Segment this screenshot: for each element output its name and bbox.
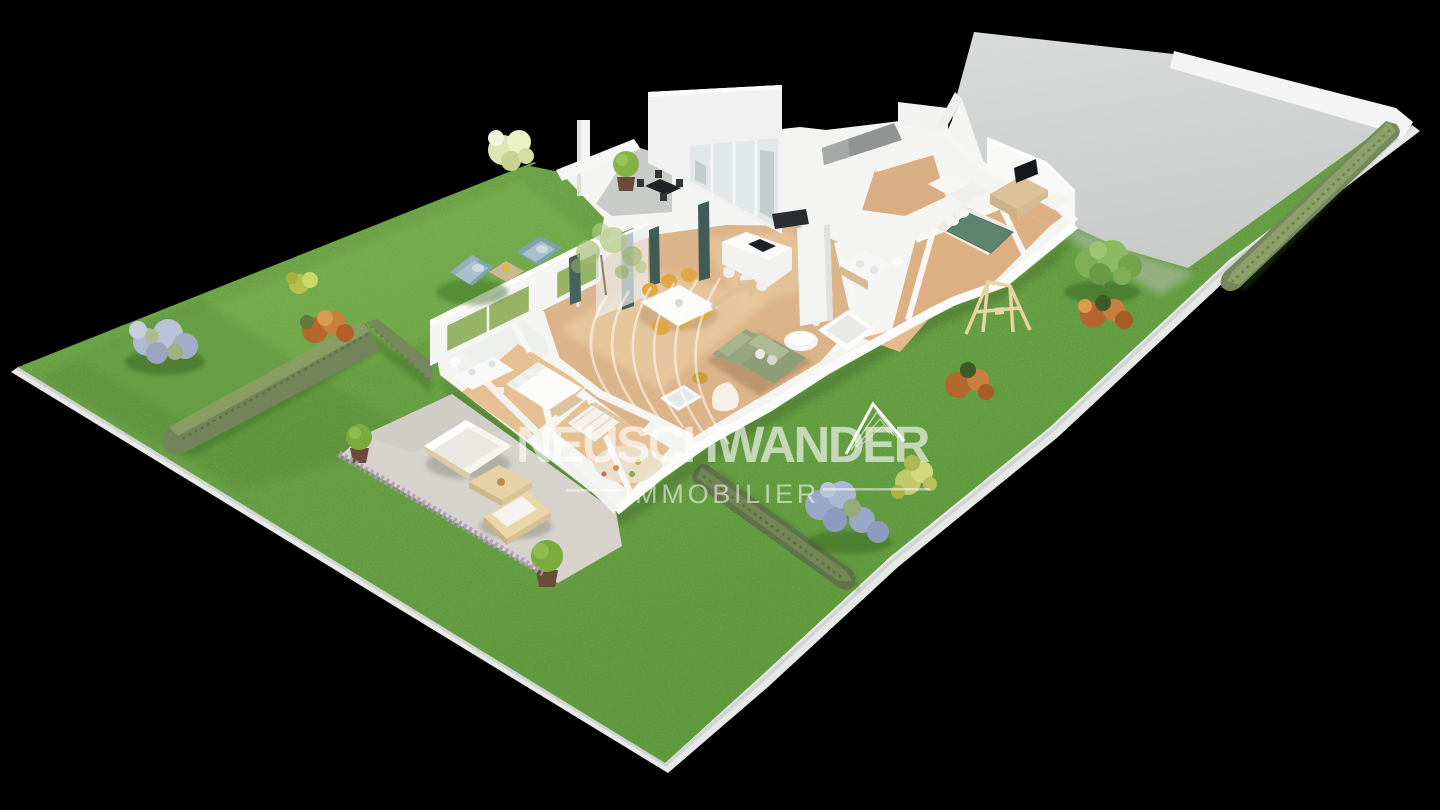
svg-text:NEUSCHWANDER: NEUSCHWANDER [516, 416, 930, 473]
svg-text:IMMOBILIER: IMMOBILIER [624, 479, 820, 509]
